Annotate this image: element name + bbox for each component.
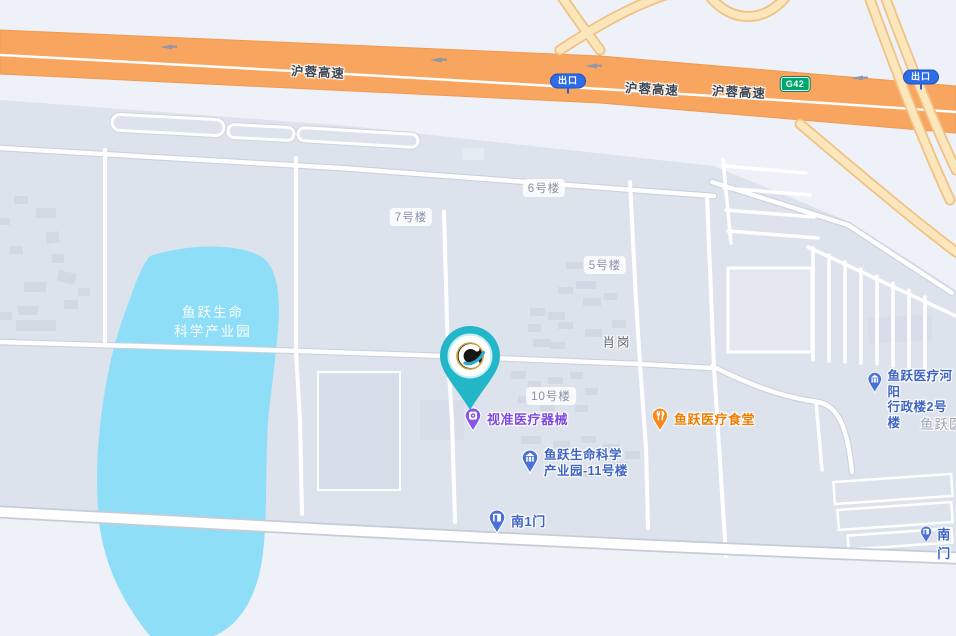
map-tiles (0, 0, 956, 636)
poi-admin-building[interactable]: 鱼跃医疗河阳 行政楼2号楼 (866, 369, 956, 431)
poi-park-11-building[interactable]: 鱼跃生命科学 产业园-11号楼 (520, 448, 628, 479)
building-label-10: 10号楼 (526, 387, 576, 405)
poi-admin-label-line2: 行政楼2号楼 (888, 400, 956, 431)
poi-south-gate-label: 南门 (937, 524, 956, 562)
building-label-6: 6号楼 (523, 179, 565, 197)
building-marker-icon (520, 448, 540, 474)
exit-badge-icon-2: 出口 (903, 70, 939, 85)
poi-admin-label-line1: 鱼跃医疗河阳 (888, 369, 956, 400)
poi-park11-label-line2: 产业园-11号楼 (544, 464, 628, 480)
building-label-7: 7号楼 (390, 208, 432, 226)
lake-name-line2: 科学产业园 (174, 322, 252, 341)
lake-name-label: 鱼跃生命 科学产业园 (174, 303, 252, 341)
highway-name-label-2: 沪蓉高速 (625, 77, 680, 99)
poi-south-gate-1-label: 南1门 (511, 511, 546, 530)
poi-canteen-label: 鱼跃医疗食堂 (674, 409, 755, 428)
map-canvas[interactable]: 沪蓉高速 沪蓉高速 沪蓉高速 出口 出口 G42 7号楼 6号楼 5号楼 10号… (0, 0, 956, 636)
route-shield-g42: G42 (781, 77, 810, 91)
poi-admin-label: 鱼跃医疗河阳 行政楼2号楼 (888, 369, 956, 431)
poi-park11-label-line1: 鱼跃生命科学 (544, 448, 628, 464)
highway-name-label-3: 沪蓉高速 (712, 80, 767, 102)
lake-name-line1: 鱼跃生命 (174, 303, 252, 322)
exit-badge-icon: 出口 (550, 74, 586, 89)
restaurant-marker-icon (650, 406, 670, 432)
area-label-xiaogang: 肖岗 (602, 332, 631, 351)
poi-south-gate[interactable]: 南门 (919, 521, 956, 562)
location-pin[interactable] (438, 322, 502, 419)
poi-park11-label: 鱼跃生命科学 产业园-11号楼 (544, 448, 628, 479)
gate-marker-icon (919, 521, 933, 547)
location-pin-icon (438, 322, 502, 414)
highway-name-label: 沪蓉高速 (291, 60, 346, 82)
building-marker-icon (866, 369, 884, 395)
building-label-5: 5号楼 (584, 256, 626, 274)
poi-south-gate-1[interactable]: 南1门 (487, 508, 546, 534)
gate-marker-icon (487, 508, 507, 534)
poi-canteen[interactable]: 鱼跃医疗食堂 (650, 406, 755, 432)
